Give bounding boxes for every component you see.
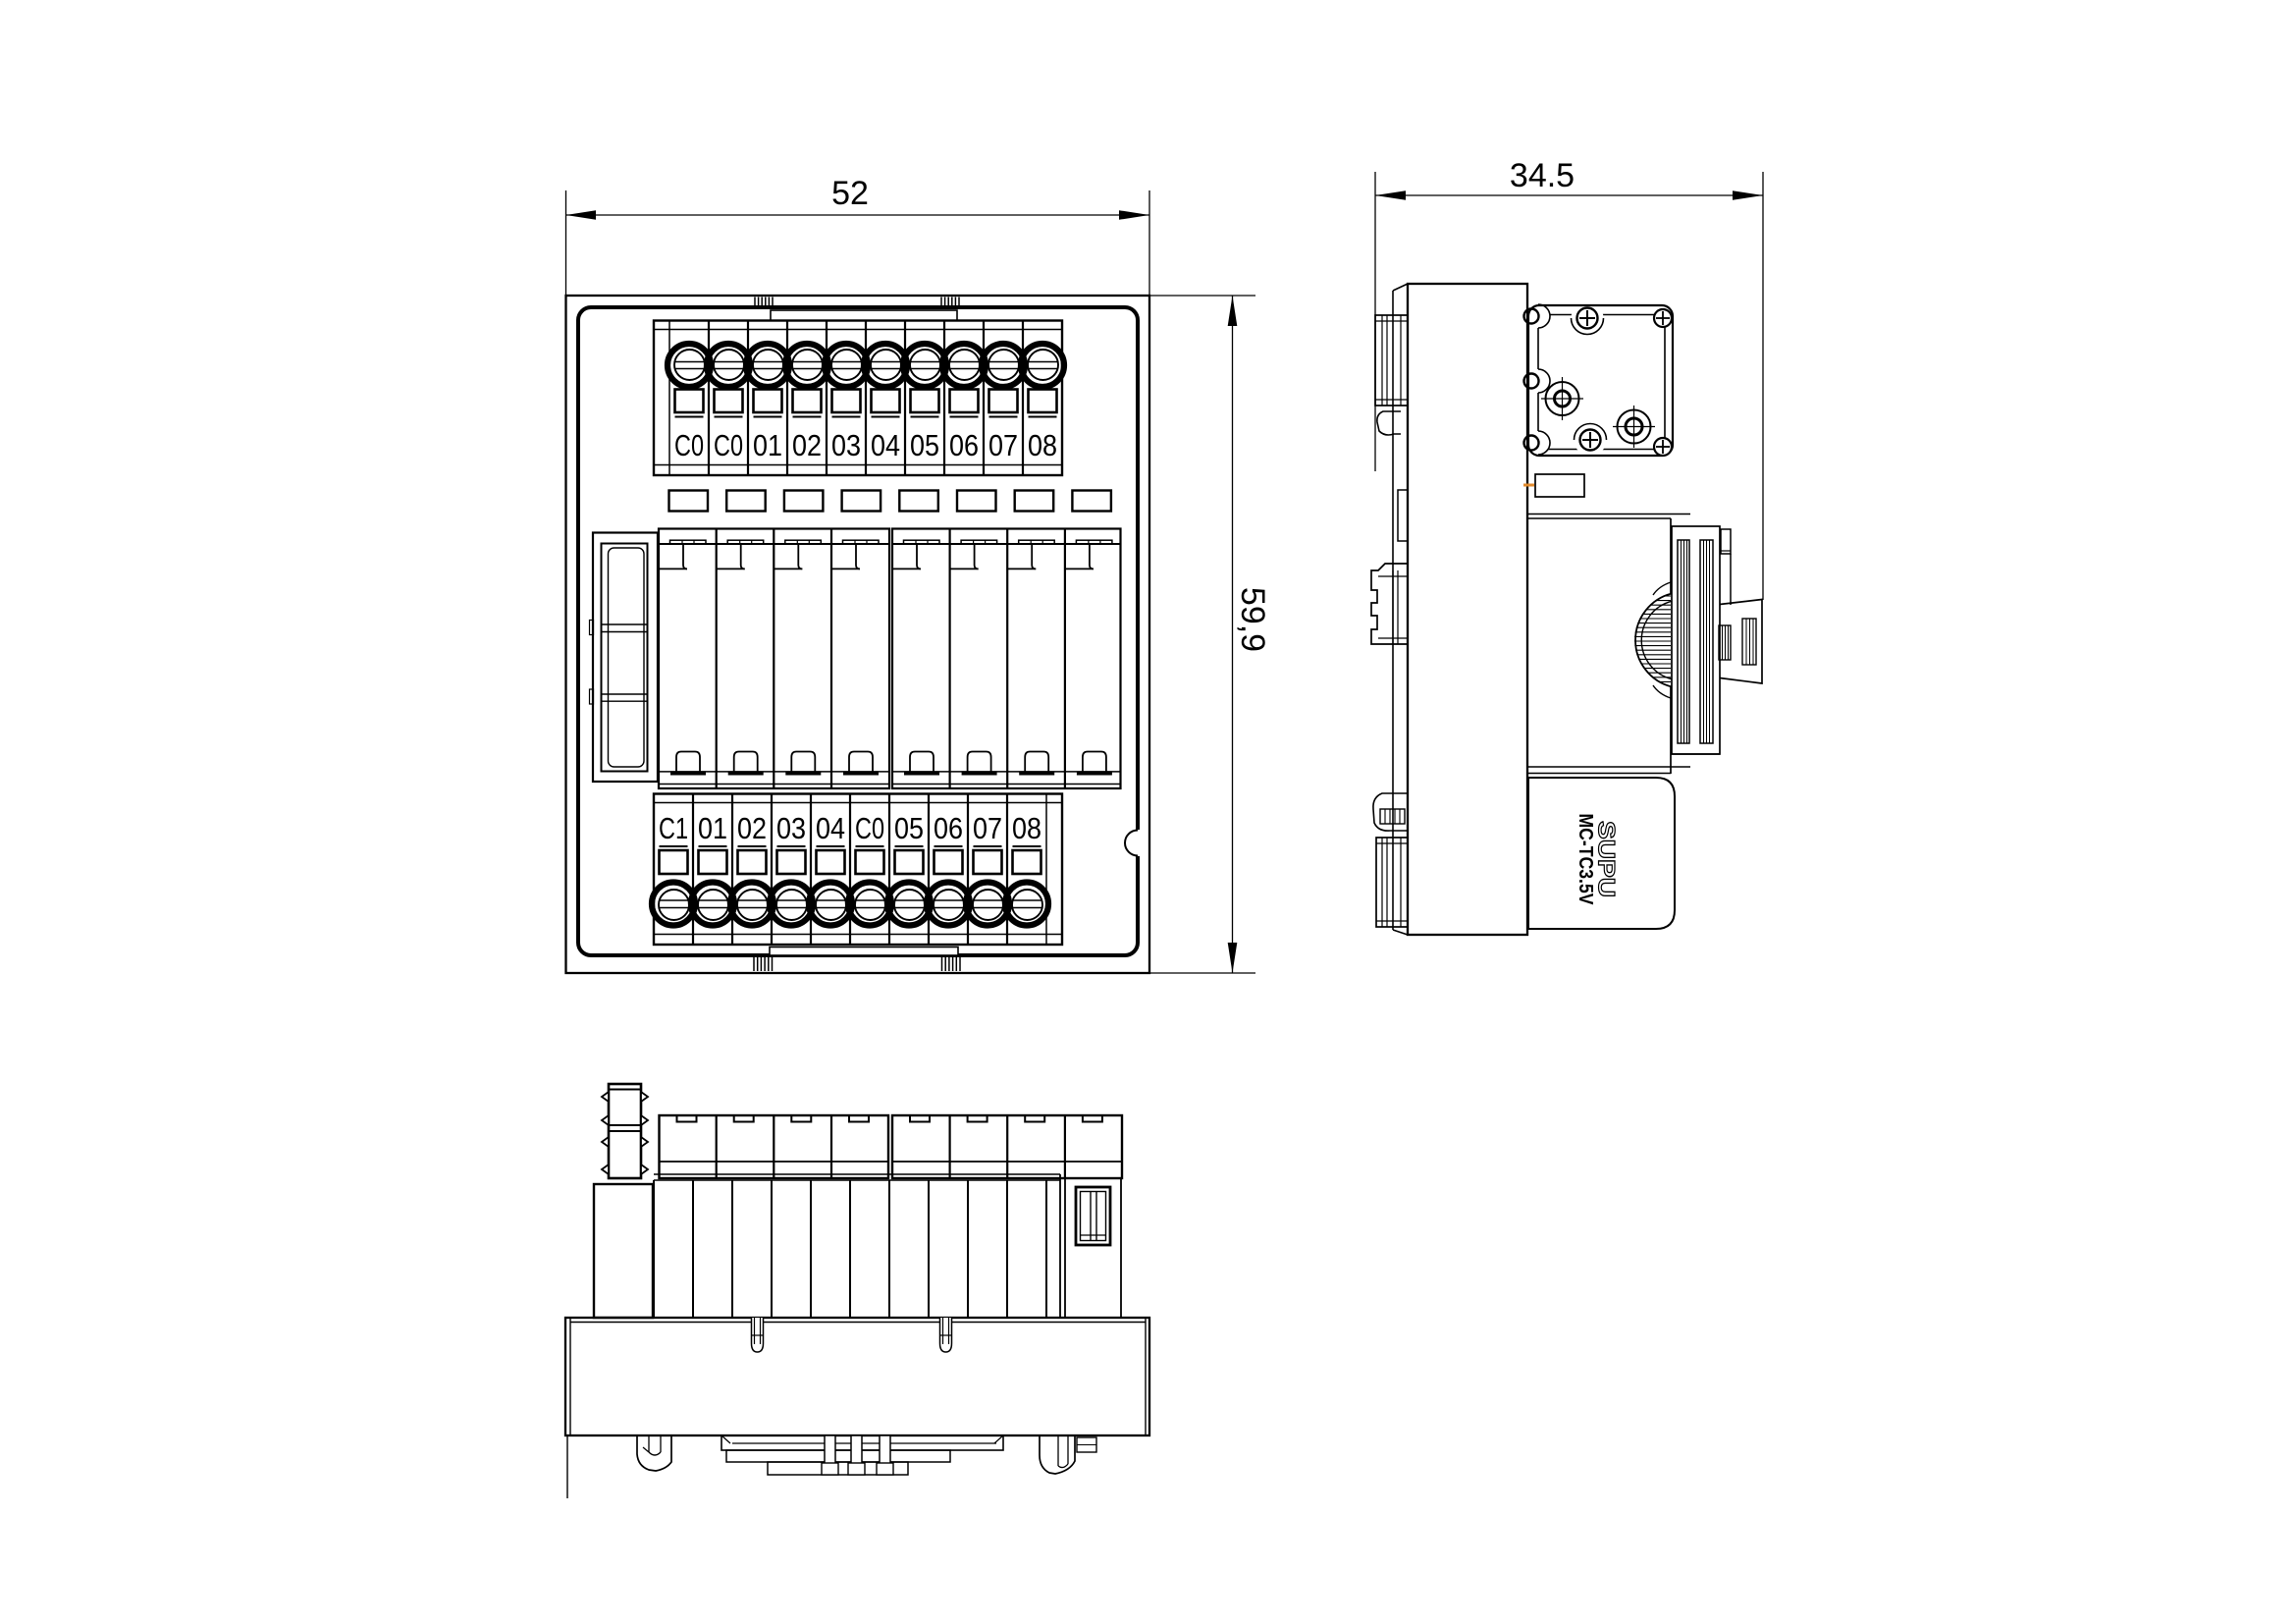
svg-text:03: 03: [776, 811, 806, 845]
svg-text:01: 01: [698, 811, 727, 845]
svg-text:02: 02: [737, 811, 767, 845]
svg-text:52: 52: [831, 175, 869, 212]
svg-text:C0: C0: [855, 811, 884, 845]
svg-text:06: 06: [949, 428, 979, 462]
svg-text:05: 05: [894, 811, 924, 845]
svg-text:MC-TC3.5V: MC-TC3.5V: [1575, 814, 1596, 906]
svg-text:05: 05: [910, 428, 939, 462]
svg-text:08: 08: [1012, 811, 1041, 845]
svg-text:01: 01: [753, 428, 782, 462]
svg-text:04: 04: [816, 811, 845, 845]
svg-text:59,9: 59,9: [1234, 587, 1271, 652]
svg-text:04: 04: [871, 428, 900, 462]
svg-text:08: 08: [1028, 428, 1057, 462]
svg-text:06: 06: [934, 811, 963, 845]
svg-text:C0: C0: [674, 428, 704, 462]
svg-text:07: 07: [988, 428, 1018, 462]
svg-text:02: 02: [792, 428, 822, 462]
svg-text:C1: C1: [659, 811, 688, 845]
svg-text:07: 07: [973, 811, 1002, 845]
svg-text:C0: C0: [714, 428, 743, 462]
svg-text:34.5: 34.5: [1510, 157, 1575, 194]
svg-text:03: 03: [831, 428, 861, 462]
